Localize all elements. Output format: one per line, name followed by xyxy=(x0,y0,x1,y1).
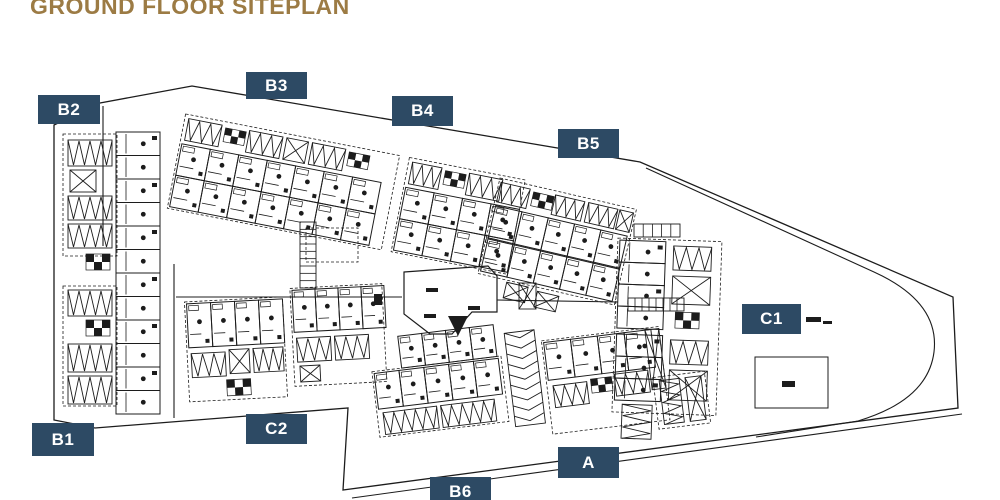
block-badge-c2: C2 xyxy=(246,414,307,444)
block-badge-b5: B5 xyxy=(558,129,619,158)
siteplan-drawing xyxy=(0,0,1000,500)
cluster-block-a-b6-band xyxy=(368,300,711,463)
block-badge-c1: C1 xyxy=(742,304,801,334)
block-badge-a: A xyxy=(558,447,619,478)
siteplan-canvas: GROUND FLOOR SITEPLAN B2B3B4B5C1B1C2AB6 xyxy=(0,0,1000,500)
cluster-block-c2-cluster xyxy=(184,284,389,402)
block-badge-b2: B2 xyxy=(38,95,100,124)
block-badge-b6: B6 xyxy=(430,477,491,500)
cluster-block-b2-b1-strip xyxy=(63,132,160,414)
cluster-block-b3-b4-band xyxy=(167,114,525,274)
block-badge-b4: B4 xyxy=(392,96,453,126)
block-badge-b1: B1 xyxy=(32,423,94,456)
cluster-central-clubhouse xyxy=(374,266,497,336)
block-badge-b3: B3 xyxy=(246,72,307,99)
